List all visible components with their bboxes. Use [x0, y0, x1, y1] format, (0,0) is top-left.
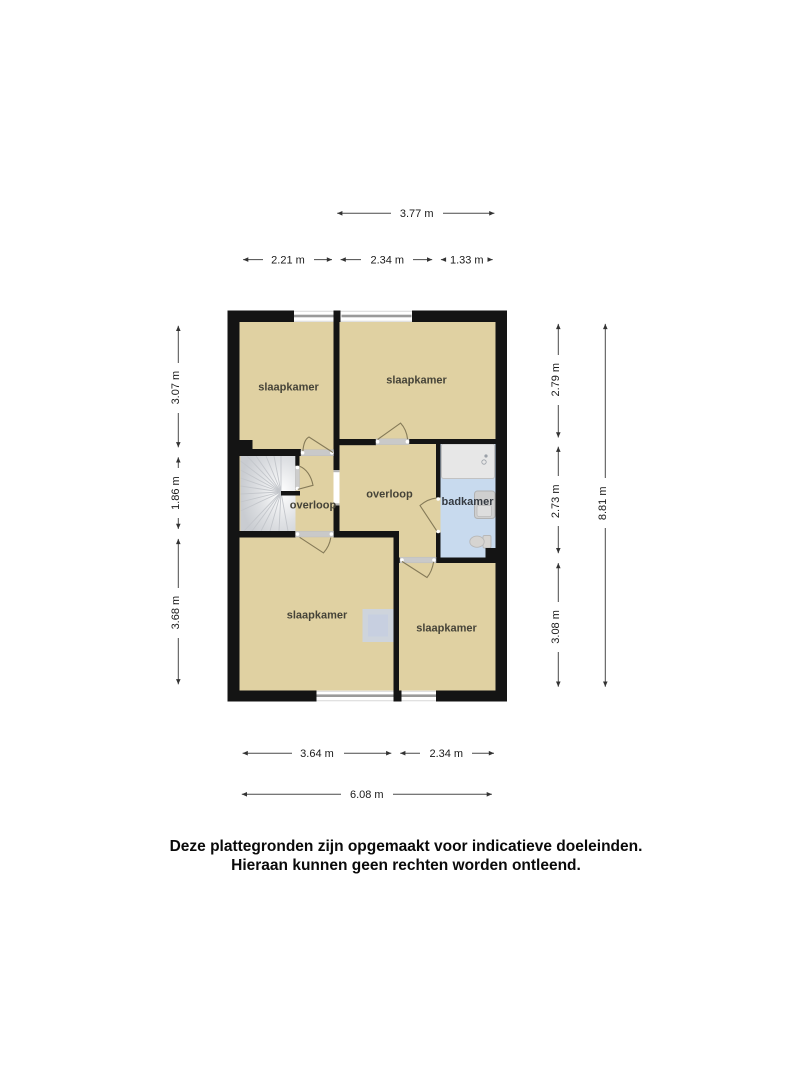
- svg-text:3.68 m: 3.68 m: [170, 596, 182, 630]
- svg-text:Hieraan kunnen geen rechten wo: Hieraan kunnen geen rechten worden ontle…: [231, 857, 581, 874]
- svg-text:2.79 m: 2.79 m: [550, 363, 562, 397]
- svg-text:3.08 m: 3.08 m: [550, 610, 562, 644]
- svg-text:3.64 m: 3.64 m: [300, 748, 334, 760]
- svg-text:slaapkamer: slaapkamer: [258, 382, 319, 394]
- svg-text:2.73 m: 2.73 m: [550, 484, 562, 518]
- svg-text:2.34 m: 2.34 m: [370, 254, 404, 266]
- svg-text:2.21 m: 2.21 m: [271, 254, 305, 266]
- svg-text:slaapkamer: slaapkamer: [287, 610, 348, 622]
- svg-text:slaapkamer: slaapkamer: [416, 623, 477, 635]
- svg-text:badkamer: badkamer: [442, 496, 495, 508]
- svg-text:1.33 m: 1.33 m: [450, 254, 484, 266]
- svg-text:6.08 m: 6.08 m: [350, 789, 384, 801]
- svg-text:8.81 m: 8.81 m: [597, 486, 609, 520]
- svg-text:1.86 m: 1.86 m: [170, 476, 182, 510]
- svg-text:slaapkamer: slaapkamer: [386, 375, 447, 387]
- svg-text:Deze plattegronden zijn opgema: Deze plattegronden zijn opgemaakt voor i…: [170, 838, 643, 855]
- svg-text:overloop: overloop: [366, 489, 413, 501]
- svg-text:2.34 m: 2.34 m: [429, 748, 463, 760]
- svg-text:3.77 m: 3.77 m: [400, 208, 434, 220]
- svg-text:3.07 m: 3.07 m: [170, 371, 182, 405]
- svg-text:overloop: overloop: [290, 500, 337, 512]
